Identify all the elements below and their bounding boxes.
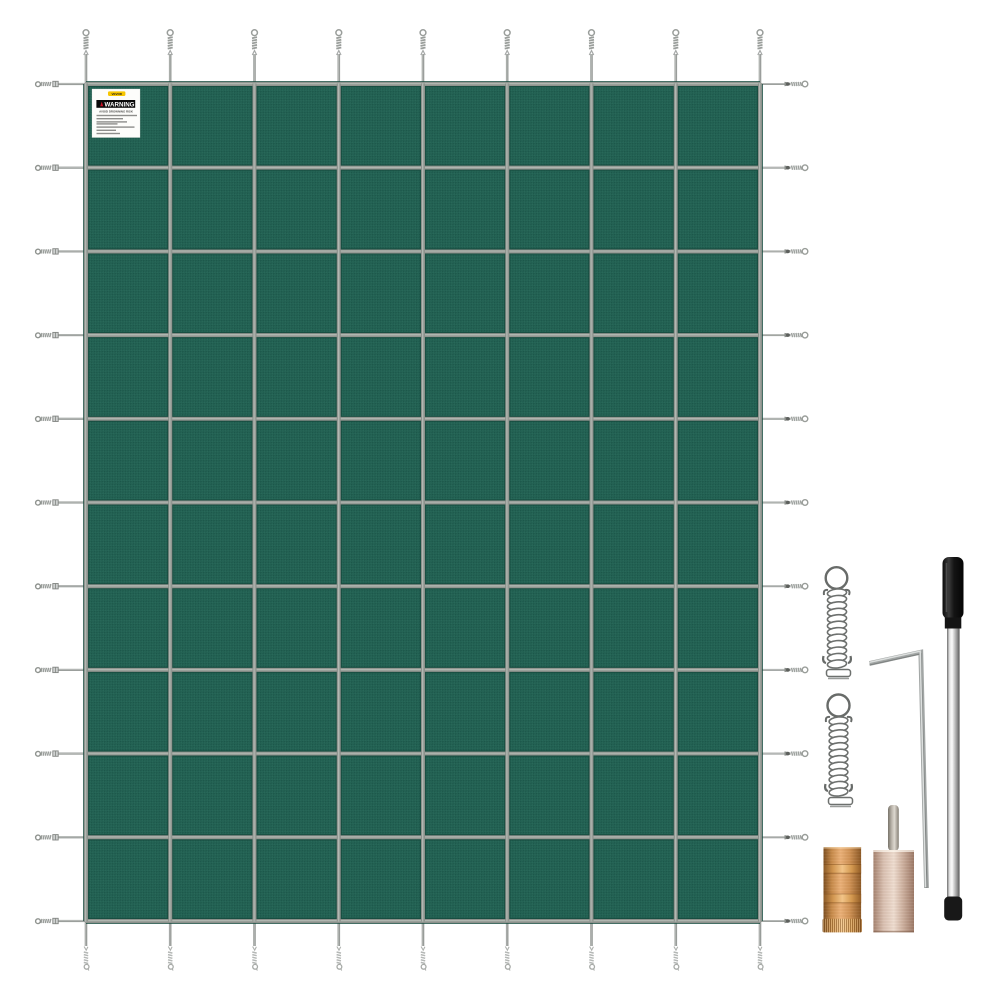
svg-text:VEVOR: VEVOR bbox=[111, 92, 122, 96]
svg-text:AVOID DROWNING RISK: AVOID DROWNING RISK bbox=[99, 109, 134, 113]
svg-text:WARNING: WARNING bbox=[105, 101, 135, 108]
